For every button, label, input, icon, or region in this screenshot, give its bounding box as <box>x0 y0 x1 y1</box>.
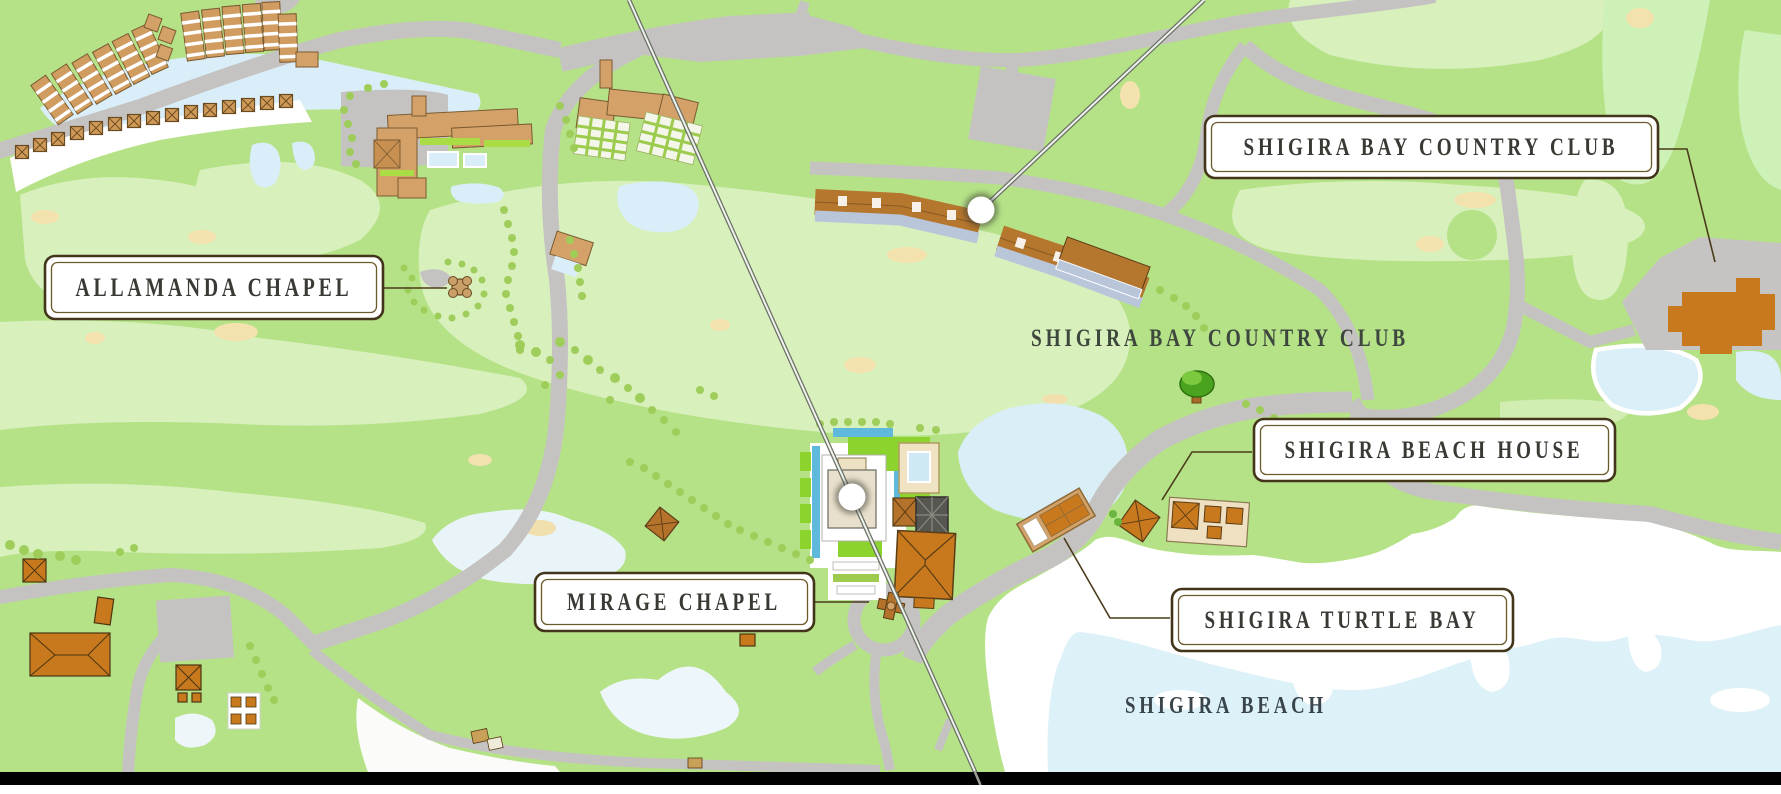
svg-text:SHIGIRA BAY COUNTRY CLUB: SHIGIRA BAY COUNTRY CLUB <box>1244 134 1619 161</box>
svg-text:SHIGIRA BAY COUNTRY CLUB: SHIGIRA BAY COUNTRY CLUB <box>1031 325 1409 352</box>
svg-text:SHIGIRA BEACH: SHIGIRA BEACH <box>1125 693 1327 719</box>
svg-text:MIRAGE CHAPEL: MIRAGE CHAPEL <box>567 589 781 616</box>
svg-text:ALLAMANDA CHAPEL: ALLAMANDA CHAPEL <box>76 273 353 302</box>
svg-text:SHIGIRA BEACH HOUSE: SHIGIRA BEACH HOUSE <box>1285 437 1584 464</box>
svg-text:SHIGIRA TURTLE BAY: SHIGIRA TURTLE BAY <box>1205 607 1480 634</box>
